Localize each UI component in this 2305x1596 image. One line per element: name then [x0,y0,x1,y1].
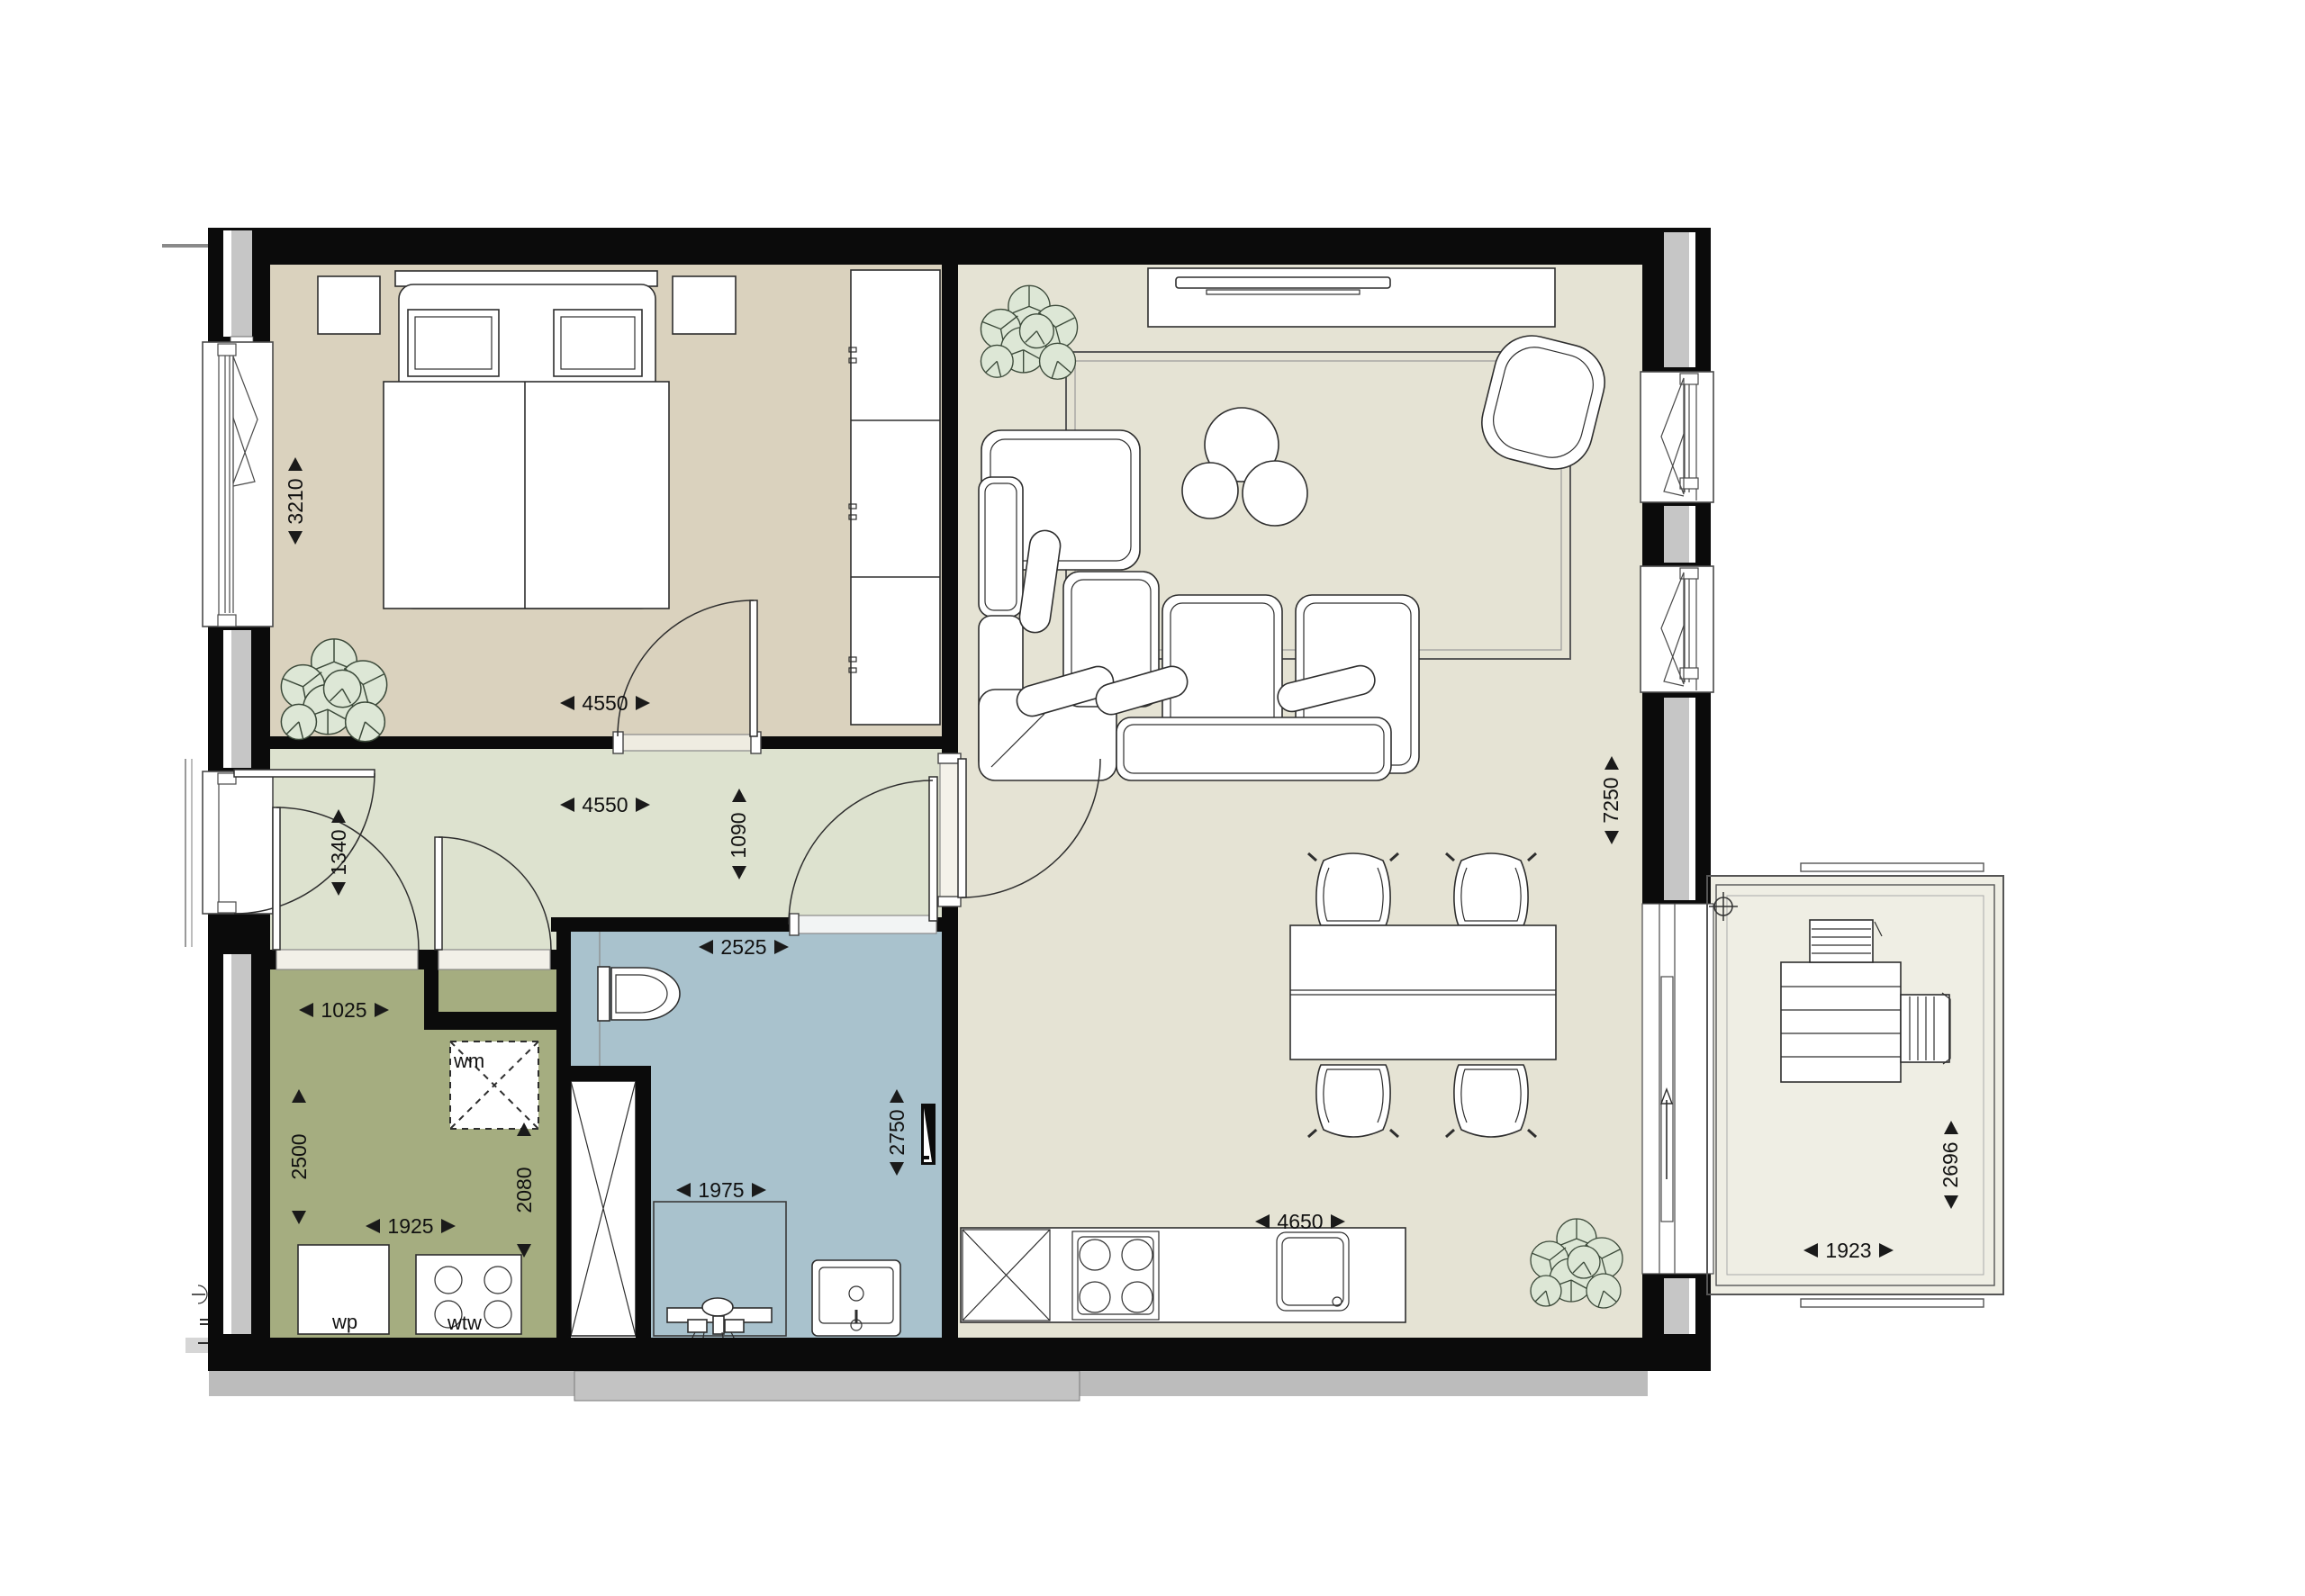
svg-text:4550: 4550 [582,793,628,816]
svg-text:1925: 1925 [387,1214,433,1238]
svg-text:2500: 2500 [287,1133,311,1179]
svg-text:2750: 2750 [885,1109,908,1155]
svg-text:1025: 1025 [321,998,366,1022]
svg-text:wp: wp [331,1311,357,1333]
svg-text:wm: wm [453,1050,484,1072]
svg-text:1090: 1090 [727,812,750,858]
svg-text:7250: 7250 [1599,777,1623,823]
svg-text:1975: 1975 [698,1178,744,1202]
svg-text:1340: 1340 [327,829,350,875]
svg-text:2080: 2080 [512,1167,536,1213]
svg-text:4550: 4550 [582,691,628,715]
svg-text:4650: 4650 [1277,1210,1323,1233]
svg-text:2696: 2696 [1939,1141,1962,1187]
svg-text:2525: 2525 [720,935,766,959]
svg-text:3210: 3210 [284,478,307,524]
svg-text:1923: 1923 [1825,1239,1871,1262]
svg-text:wtw: wtw [447,1312,482,1334]
